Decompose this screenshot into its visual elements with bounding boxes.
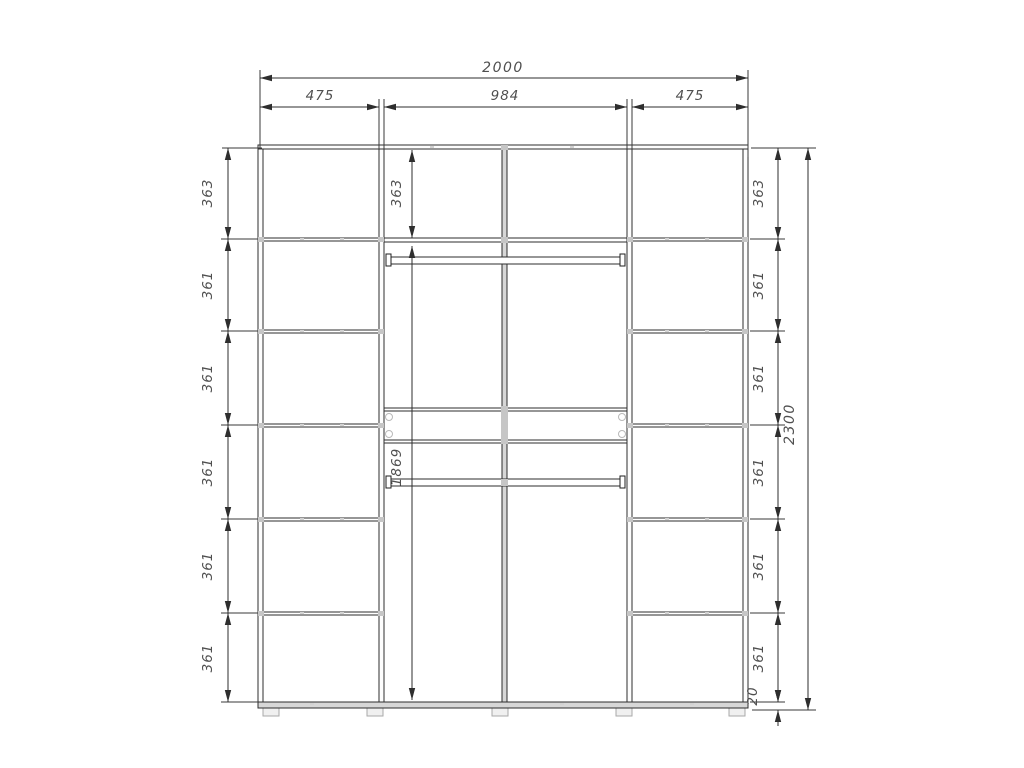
dim-label-left-row-6: 361 [200,644,216,673]
adjustable-foot [616,708,632,716]
rail-bracket [620,476,625,488]
shelf [632,238,743,241]
fitting-knob [386,414,393,421]
dim-right-rows: 363 361 361 361 361 361 20 2300 [745,148,816,726]
dim-label-right-row-3: 361 [751,364,767,393]
dim-label-right-row-5: 361 [751,552,767,581]
dim-label-middle-section: 984 [491,88,520,104]
shelf [632,612,743,615]
right-section-shelves [632,238,743,615]
dim-label-left-row-4: 361 [200,458,216,487]
shelf [263,612,379,615]
shelf [263,424,379,427]
dim-label-right-section: 475 [676,88,705,104]
dim-label-left-section: 475 [306,88,335,104]
dim-label-base-height: 20 [745,686,761,705]
dim-label-right-row-2: 361 [751,271,767,300]
fitting-knob [619,414,626,421]
shelf [263,238,379,241]
dim-label-total-width: 2000 [482,60,524,76]
shelf [263,330,379,333]
feet [263,708,745,716]
dim-label-right-row-1: 363 [751,179,767,208]
dim-label-right-row-4: 361 [751,458,767,487]
dimensions: 2000 475 984 475 363 361 361 [200,60,816,726]
shelf [263,518,379,521]
rail-bracket [620,254,625,266]
dim-left-rows: 363 361 361 361 361 361 [200,148,262,702]
clothes-rail-upper [389,257,622,264]
adjustable-foot [729,708,745,716]
dim-label-left-row-1: 363 [200,179,216,208]
adjustable-foot [263,708,279,716]
dim-label-middle-top: 363 [389,179,405,208]
dim-label-total-height: 2300 [782,403,798,445]
adjustable-foot [367,708,383,716]
rail-bracket [386,254,391,266]
shelf [632,518,743,521]
adjustable-foot [492,708,508,716]
dim-label-left-row-3: 361 [200,364,216,393]
dim-label-left-row-2: 361 [200,271,216,300]
fitting-knob [386,431,393,438]
dim-top-widths: 2000 475 984 475 [260,60,748,157]
bottom-panel [258,702,748,708]
shelf [632,330,743,333]
dim-label-middle-open-height: 1869 [389,448,405,486]
left-section-shelves [263,238,379,615]
wardrobe-elevation-svg: 2000 475 984 475 363 361 361 [0,0,1024,768]
fitting-knob [619,431,626,438]
dim-label-right-row-6: 361 [751,644,767,673]
dim-middle-interior: 363 1869 [389,150,412,700]
wardrobe-drawing-canvas: 2000 475 984 475 363 361 361 [0,0,1024,768]
shelf [632,424,743,427]
cabinet-body [258,145,748,716]
dim-label-left-row-5: 361 [200,552,216,581]
